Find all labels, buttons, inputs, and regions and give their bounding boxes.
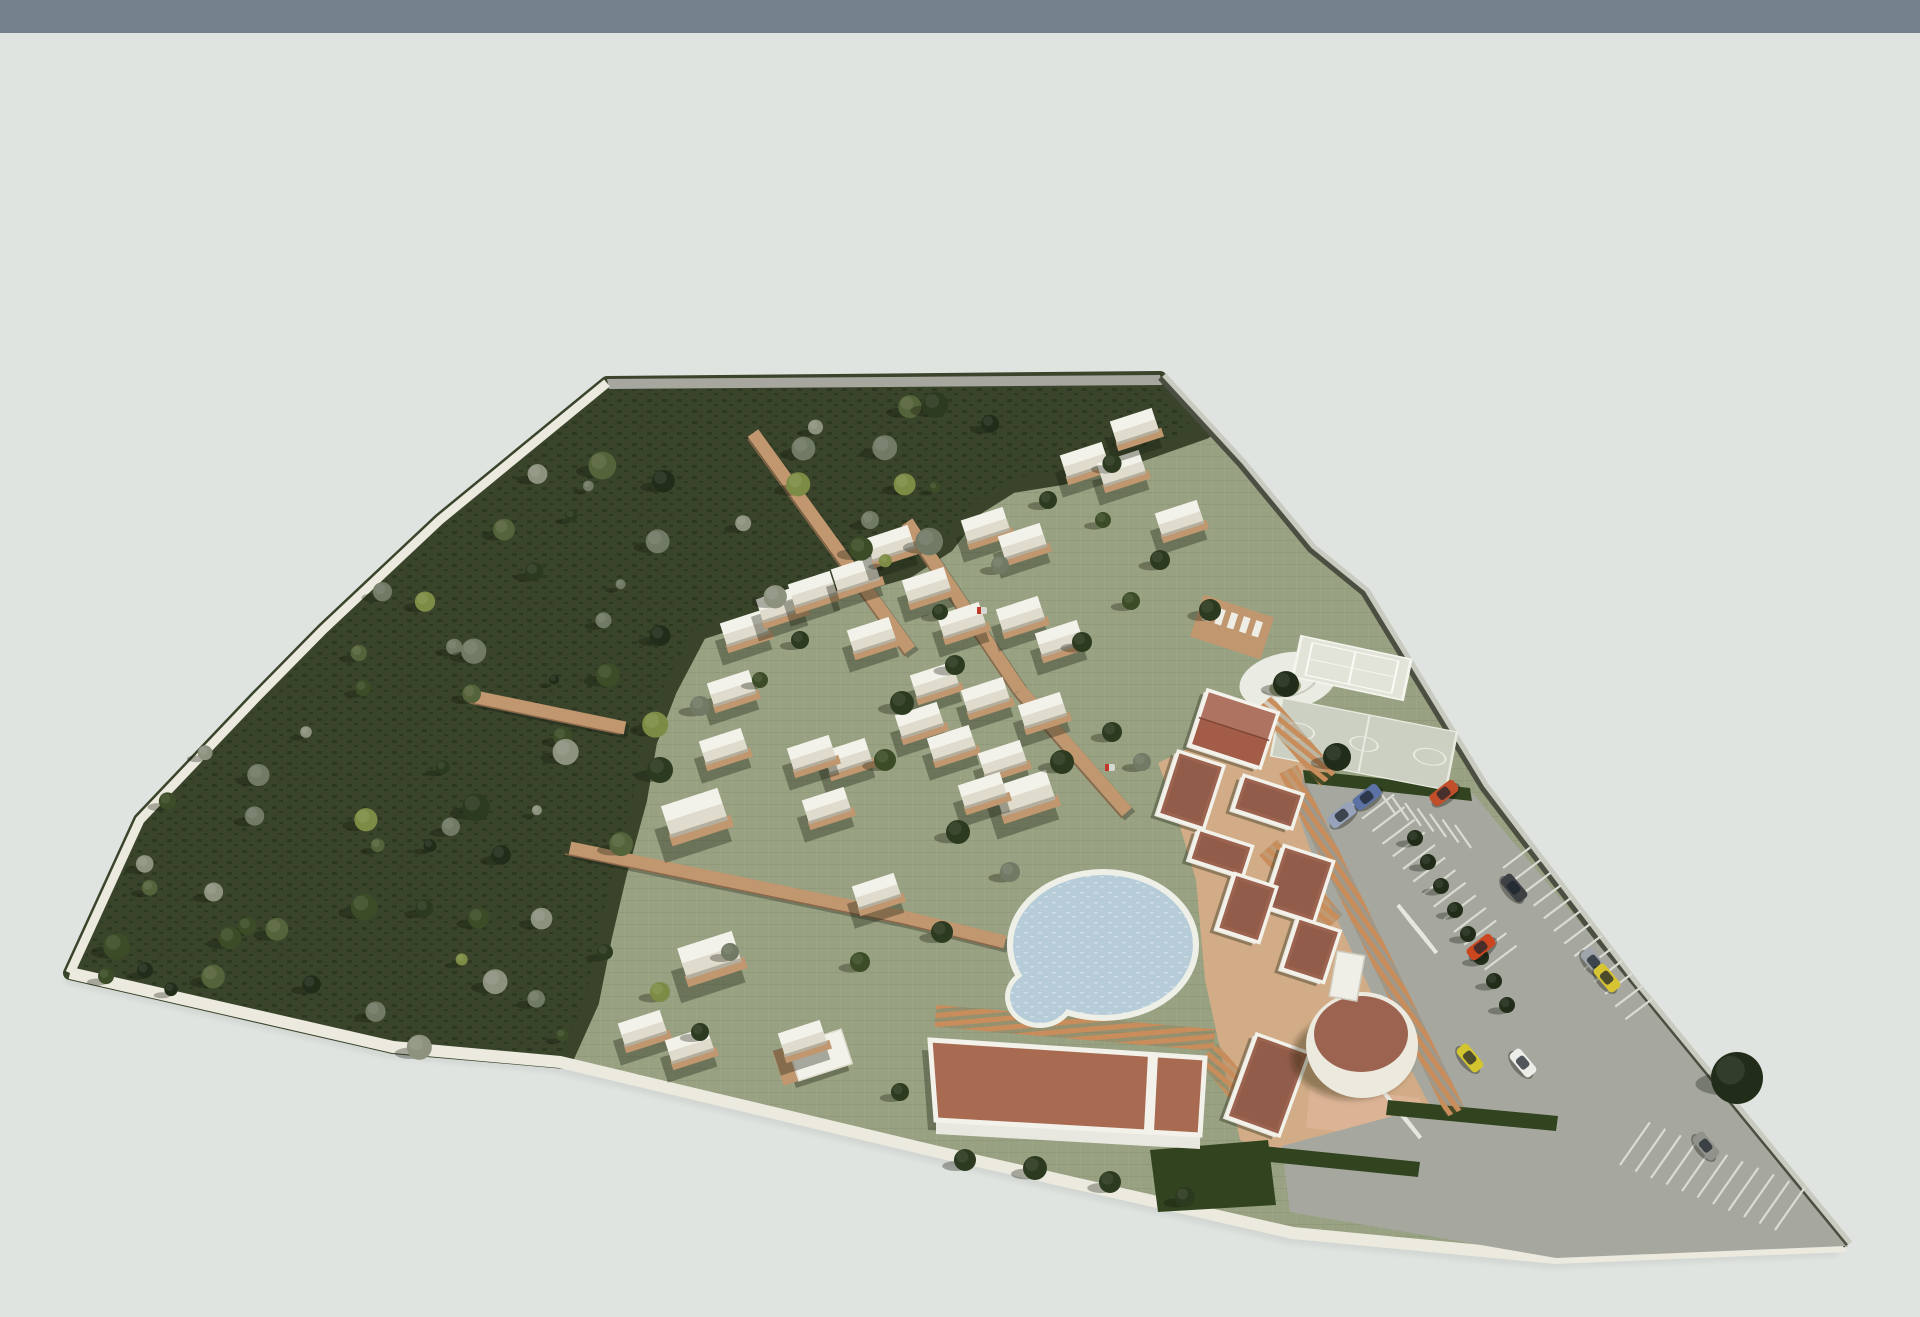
tree-shadow bbox=[522, 814, 535, 819]
tree-highlight bbox=[948, 822, 961, 835]
tree-highlight bbox=[249, 766, 261, 778]
tree-highlight bbox=[529, 991, 539, 1001]
tree-highlight bbox=[204, 967, 217, 980]
tree-highlight bbox=[199, 747, 207, 755]
tree-highlight bbox=[983, 416, 993, 426]
architectural-render-viewport bbox=[0, 0, 1920, 1317]
tree-highlight bbox=[1097, 513, 1106, 522]
tree-highlight bbox=[357, 810, 370, 823]
tree-highlight bbox=[901, 397, 914, 410]
tree-highlight bbox=[372, 839, 380, 847]
tree-highlight bbox=[493, 847, 504, 858]
tree-highlight bbox=[448, 640, 457, 649]
tree-highlight bbox=[652, 984, 663, 995]
tree-highlight bbox=[947, 657, 958, 668]
tree-highlight bbox=[247, 808, 258, 819]
tree-highlight bbox=[876, 751, 888, 763]
tree-highlight bbox=[143, 881, 152, 890]
tree-highlight bbox=[457, 954, 464, 961]
tree-highlight bbox=[754, 673, 763, 682]
tree-highlight bbox=[918, 530, 933, 545]
tree-highlight bbox=[1052, 752, 1065, 765]
tree-highlight bbox=[648, 531, 661, 544]
tree-highlight bbox=[597, 613, 606, 622]
tree-highlight bbox=[930, 482, 936, 488]
tree-highlight bbox=[956, 1151, 968, 1163]
kids-pool-water bbox=[1010, 971, 1070, 1023]
tree-highlight bbox=[464, 686, 474, 696]
tree-highlight bbox=[1422, 855, 1431, 864]
tree-highlight bbox=[301, 727, 307, 733]
cart bbox=[1105, 764, 1115, 771]
tree-highlight bbox=[352, 646, 361, 655]
cart bbox=[977, 607, 987, 614]
tree-highlight bbox=[555, 728, 565, 738]
tree-highlight bbox=[464, 640, 478, 654]
tree-highlight bbox=[138, 856, 148, 866]
tree-highlight bbox=[139, 963, 148, 972]
tree-highlight bbox=[993, 557, 1003, 567]
tree-highlight bbox=[1104, 455, 1115, 466]
tree-highlight bbox=[1002, 864, 1013, 875]
tree-highlight bbox=[1326, 745, 1341, 760]
tree-highlight bbox=[206, 884, 216, 894]
tree-highlight bbox=[221, 928, 234, 941]
tree-highlight bbox=[892, 693, 905, 706]
tree-highlight bbox=[693, 1024, 703, 1034]
tree-highlight bbox=[425, 840, 432, 847]
tree-highlight bbox=[100, 969, 109, 978]
cart-front bbox=[977, 607, 981, 614]
tree-highlight bbox=[617, 580, 623, 586]
tree-highlight bbox=[925, 394, 939, 408]
tree-highlight bbox=[304, 977, 314, 987]
tree-highlight bbox=[723, 944, 733, 954]
tree-highlight bbox=[555, 741, 569, 755]
tree-highlight bbox=[692, 698, 703, 709]
tree-highlight bbox=[240, 919, 250, 929]
tree-highlight bbox=[470, 909, 482, 921]
tree-highlight bbox=[417, 901, 427, 911]
tree-highlight bbox=[161, 794, 171, 804]
tree-highlight bbox=[652, 627, 663, 638]
tree-highlight bbox=[495, 520, 507, 532]
tree-highlight bbox=[530, 466, 541, 477]
tree-shadow bbox=[919, 491, 933, 496]
round-roof bbox=[1314, 996, 1408, 1072]
tree-highlight bbox=[1152, 552, 1163, 563]
tree-shadow bbox=[539, 683, 552, 688]
tree-highlight bbox=[417, 593, 428, 604]
tree-highlight bbox=[893, 1084, 903, 1094]
tree-highlight bbox=[1716, 1056, 1745, 1085]
tree-highlight bbox=[737, 516, 746, 525]
tree-highlight bbox=[166, 984, 173, 991]
site-plan-render bbox=[0, 0, 1920, 1317]
tree-highlight bbox=[896, 475, 908, 487]
tree-highlight bbox=[1201, 601, 1213, 613]
tree-highlight bbox=[851, 538, 864, 551]
tree-highlight bbox=[1074, 634, 1085, 645]
tree-highlight bbox=[645, 714, 659, 728]
tree-highlight bbox=[1449, 903, 1458, 912]
tree-highlight bbox=[1435, 879, 1444, 888]
tree-highlight bbox=[1462, 927, 1471, 936]
tree-shadow bbox=[605, 588, 618, 593]
tree-highlight bbox=[1177, 1189, 1188, 1200]
tree-highlight bbox=[933, 923, 945, 935]
tree-highlight bbox=[1041, 492, 1051, 502]
tree-highlight bbox=[437, 761, 445, 769]
tree-highlight bbox=[598, 665, 611, 678]
tree-highlight bbox=[591, 454, 606, 469]
tree-highlight bbox=[1101, 1173, 1113, 1185]
tree-highlight bbox=[1276, 673, 1290, 687]
tree-highlight bbox=[766, 587, 779, 600]
tree-highlight bbox=[557, 1030, 564, 1037]
tree-highlight bbox=[612, 834, 625, 847]
tree-highlight bbox=[268, 920, 281, 933]
tree-highlight bbox=[106, 935, 121, 950]
cart-front bbox=[1105, 764, 1109, 771]
tree-highlight bbox=[1409, 831, 1418, 840]
tree-highlight bbox=[527, 564, 537, 574]
tree-shadow bbox=[573, 490, 586, 495]
tree-highlight bbox=[1501, 998, 1510, 1007]
tree-highlight bbox=[875, 437, 889, 451]
tree-highlight bbox=[375, 584, 386, 595]
hall-roof bbox=[930, 1040, 1205, 1135]
tree-highlight bbox=[567, 510, 574, 517]
tree-highlight bbox=[793, 632, 803, 642]
tree-highlight bbox=[354, 896, 369, 911]
tree-highlight bbox=[485, 971, 499, 985]
tree-highlight bbox=[863, 512, 873, 522]
tree-highlight bbox=[650, 759, 664, 773]
main-hall bbox=[922, 1040, 1205, 1149]
tree-highlight bbox=[1135, 754, 1145, 764]
tree-highlight bbox=[367, 1003, 378, 1014]
tree-highlight bbox=[934, 605, 943, 614]
tree-highlight bbox=[584, 481, 590, 487]
tree-highlight bbox=[533, 806, 539, 812]
tree-highlight bbox=[409, 1037, 423, 1051]
tree-highlight bbox=[794, 438, 807, 451]
tree-highlight bbox=[599, 945, 608, 954]
tree-highlight bbox=[465, 796, 480, 811]
tree-highlight bbox=[1488, 974, 1497, 983]
tree-highlight bbox=[357, 681, 366, 690]
tree-highlight bbox=[654, 471, 667, 484]
tree-highlight bbox=[880, 555, 887, 562]
tree-highlight bbox=[789, 474, 802, 487]
tree-highlight bbox=[550, 675, 556, 681]
tree-highlight bbox=[1104, 724, 1115, 735]
tree-highlight bbox=[809, 421, 817, 429]
tree-highlight bbox=[852, 954, 863, 965]
tree-highlight bbox=[533, 909, 545, 921]
tree-highlight bbox=[1025, 1158, 1038, 1171]
tree-highlight bbox=[1124, 593, 1134, 603]
tree-highlight bbox=[443, 819, 453, 829]
